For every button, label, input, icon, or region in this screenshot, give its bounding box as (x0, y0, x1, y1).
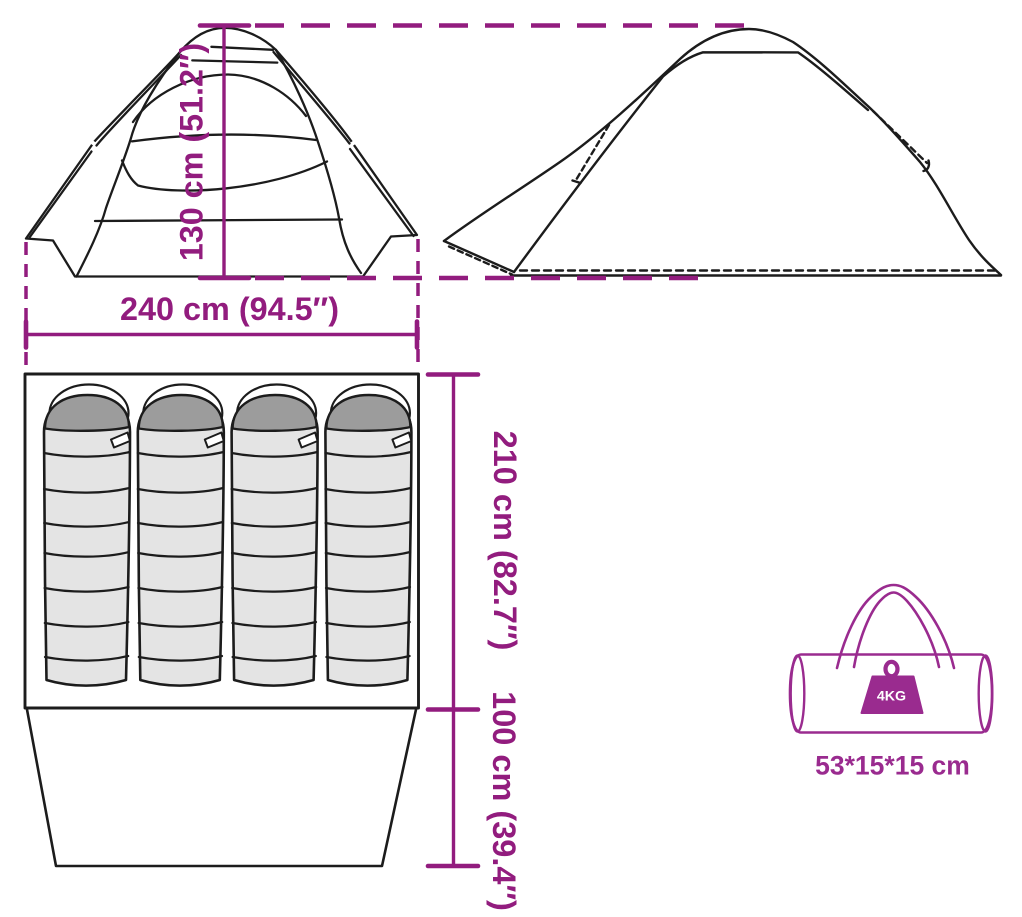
svg-text:240 cm (94.5″): 240 cm (94.5″) (120, 291, 339, 327)
svg-text:130 cm (51.2″): 130 cm (51.2″) (174, 43, 210, 261)
svg-text:53*15*15 cm: 53*15*15 cm (815, 751, 970, 781)
svg-text:100 cm (39.4″): 100 cm (39.4″) (486, 691, 522, 911)
svg-text:4KG: 4KG (877, 689, 906, 705)
svg-text:210 cm (82.7″): 210 cm (82.7″) (487, 431, 523, 651)
